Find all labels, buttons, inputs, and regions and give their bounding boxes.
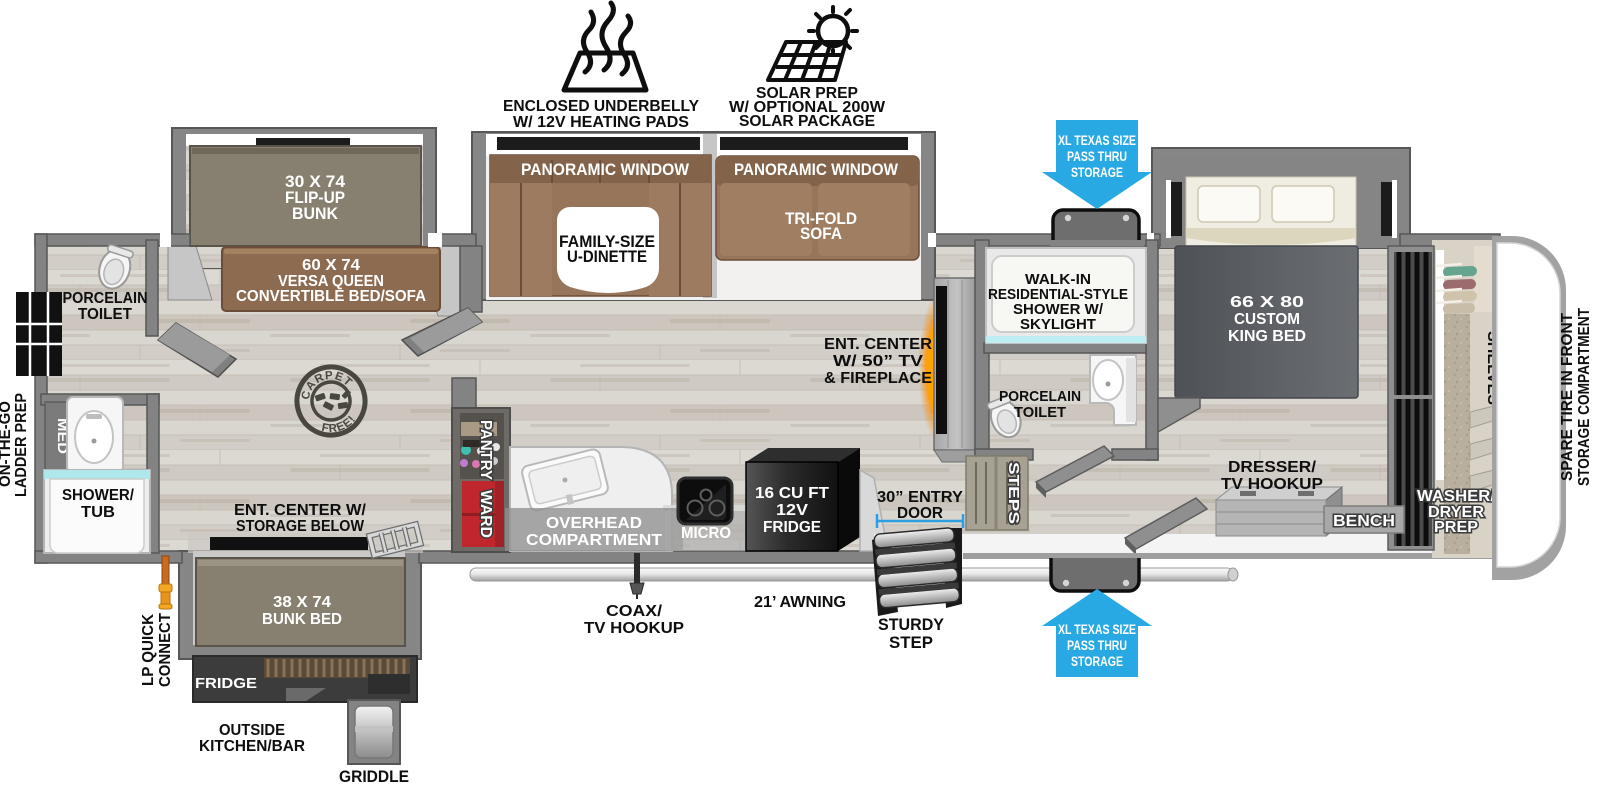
- svg-text:STEPS: STEPS: [1005, 462, 1022, 524]
- svg-text:PANORAMIC WINDOW: PANORAMIC WINDOW: [521, 160, 690, 179]
- svg-text:XL TEXAS SIZE: XL TEXAS SIZE: [1058, 133, 1136, 148]
- svg-text:66 X 80: 66 X 80: [1230, 294, 1304, 311]
- svg-text:ON-THE-GO: ON-THE-GO: [0, 401, 14, 487]
- svg-text:PASS THRU: PASS THRU: [1067, 149, 1127, 164]
- svg-text:PANORAMIC WINDOW: PANORAMIC WINDOW: [734, 160, 899, 179]
- svg-text:TOILET: TOILET: [1014, 404, 1066, 421]
- svg-text:ENT. CENTER W/: ENT. CENTER W/: [234, 502, 367, 519]
- svg-text:PORCELAIN: PORCELAIN: [999, 388, 1081, 405]
- svg-text:DRESSER/: DRESSER/: [1228, 459, 1317, 476]
- svg-text:COMPARTMENT: COMPARTMENT: [526, 532, 663, 549]
- svg-text:TV HOOKUP: TV HOOKUP: [584, 620, 684, 637]
- svg-text:LADDER PREP: LADDER PREP: [13, 393, 30, 497]
- svg-text:WASHER/: WASHER/: [1417, 488, 1496, 505]
- svg-text:STORAGE: STORAGE: [1071, 654, 1123, 669]
- svg-text:PANTRY: PANTRY: [477, 420, 494, 480]
- svg-text:12V: 12V: [776, 502, 809, 519]
- svg-text:BUNK: BUNK: [292, 204, 339, 223]
- svg-text:TUB: TUB: [81, 504, 115, 521]
- svg-text:CONVERTIBLE BED/SOFA: CONVERTIBLE BED/SOFA: [236, 288, 426, 305]
- svg-text:21’ AWNING: 21’ AWNING: [754, 594, 846, 611]
- svg-text:BENCH: BENCH: [1333, 513, 1395, 530]
- svg-text:KITCHEN/BAR: KITCHEN/BAR: [199, 738, 305, 755]
- svg-text:W/ 50” TV: W/ 50” TV: [833, 353, 923, 370]
- svg-text:TV HOOKUP: TV HOOKUP: [1221, 476, 1323, 493]
- svg-text:PREP: PREP: [1434, 519, 1478, 536]
- svg-text:COAX/: COAX/: [606, 603, 663, 620]
- svg-text:SOLAR PACKAGE: SOLAR PACKAGE: [739, 113, 875, 130]
- svg-text:STEP: STEP: [889, 633, 933, 652]
- svg-text:OUTSIDE: OUTSIDE: [219, 722, 285, 739]
- svg-text:ENT. CENTER: ENT. CENTER: [824, 336, 932, 353]
- svg-text:PORCELAIN: PORCELAIN: [63, 290, 148, 307]
- svg-text:& FIREPLACE: & FIREPLACE: [824, 370, 932, 387]
- svg-text:CUSTOM: CUSTOM: [1234, 311, 1300, 328]
- svg-text:STORAGE COMPARTMENT: STORAGE COMPARTMENT: [1576, 308, 1593, 486]
- svg-text:WARD: WARD: [477, 490, 494, 538]
- svg-text:STURDY: STURDY: [878, 615, 945, 634]
- svg-text:38 X 74: 38 X 74: [273, 594, 331, 611]
- svg-text:30” ENTRY: 30” ENTRY: [877, 489, 964, 506]
- svg-text:GRIDDLE: GRIDDLE: [339, 767, 409, 786]
- svg-text:W/ 12V HEATING PADS: W/ 12V HEATING PADS: [513, 114, 689, 131]
- svg-text:PASS THRU: PASS THRU: [1067, 638, 1127, 653]
- svg-text:DOOR: DOOR: [897, 505, 943, 522]
- svg-text:XL TEXAS SIZE: XL TEXAS SIZE: [1058, 622, 1136, 637]
- svg-text:SHOWER/: SHOWER/: [62, 487, 135, 504]
- svg-text:SKYLIGHT: SKYLIGHT: [1020, 316, 1096, 333]
- svg-text:BUNK BED: BUNK BED: [262, 611, 342, 628]
- svg-text:60 X 74: 60 X 74: [302, 257, 360, 274]
- svg-text:OVERHEAD: OVERHEAD: [546, 515, 642, 532]
- svg-text:KING BED: KING BED: [1228, 328, 1306, 345]
- svg-text:SOFA: SOFA: [800, 224, 842, 243]
- svg-text:CONNECT: CONNECT: [157, 613, 174, 687]
- svg-text:TOILET: TOILET: [78, 306, 133, 323]
- svg-text:SPARE TIRE IN FRONT: SPARE TIRE IN FRONT: [1559, 312, 1576, 481]
- svg-text:U-DINETTE: U-DINETTE: [567, 247, 647, 266]
- svg-text:MICRO: MICRO: [681, 525, 731, 542]
- svg-text:STORAGE BELOW: STORAGE BELOW: [236, 518, 364, 535]
- svg-text:ENCLOSED UNDERBELLY: ENCLOSED UNDERBELLY: [503, 98, 699, 115]
- svg-text:LP QUICK: LP QUICK: [140, 614, 157, 686]
- svg-text:STORAGE: STORAGE: [1071, 165, 1123, 180]
- svg-text:16 CU FT: 16 CU FT: [755, 485, 830, 502]
- svg-text:FRIDGE: FRIDGE: [195, 675, 257, 692]
- svg-text:FRIDGE: FRIDGE: [763, 519, 821, 536]
